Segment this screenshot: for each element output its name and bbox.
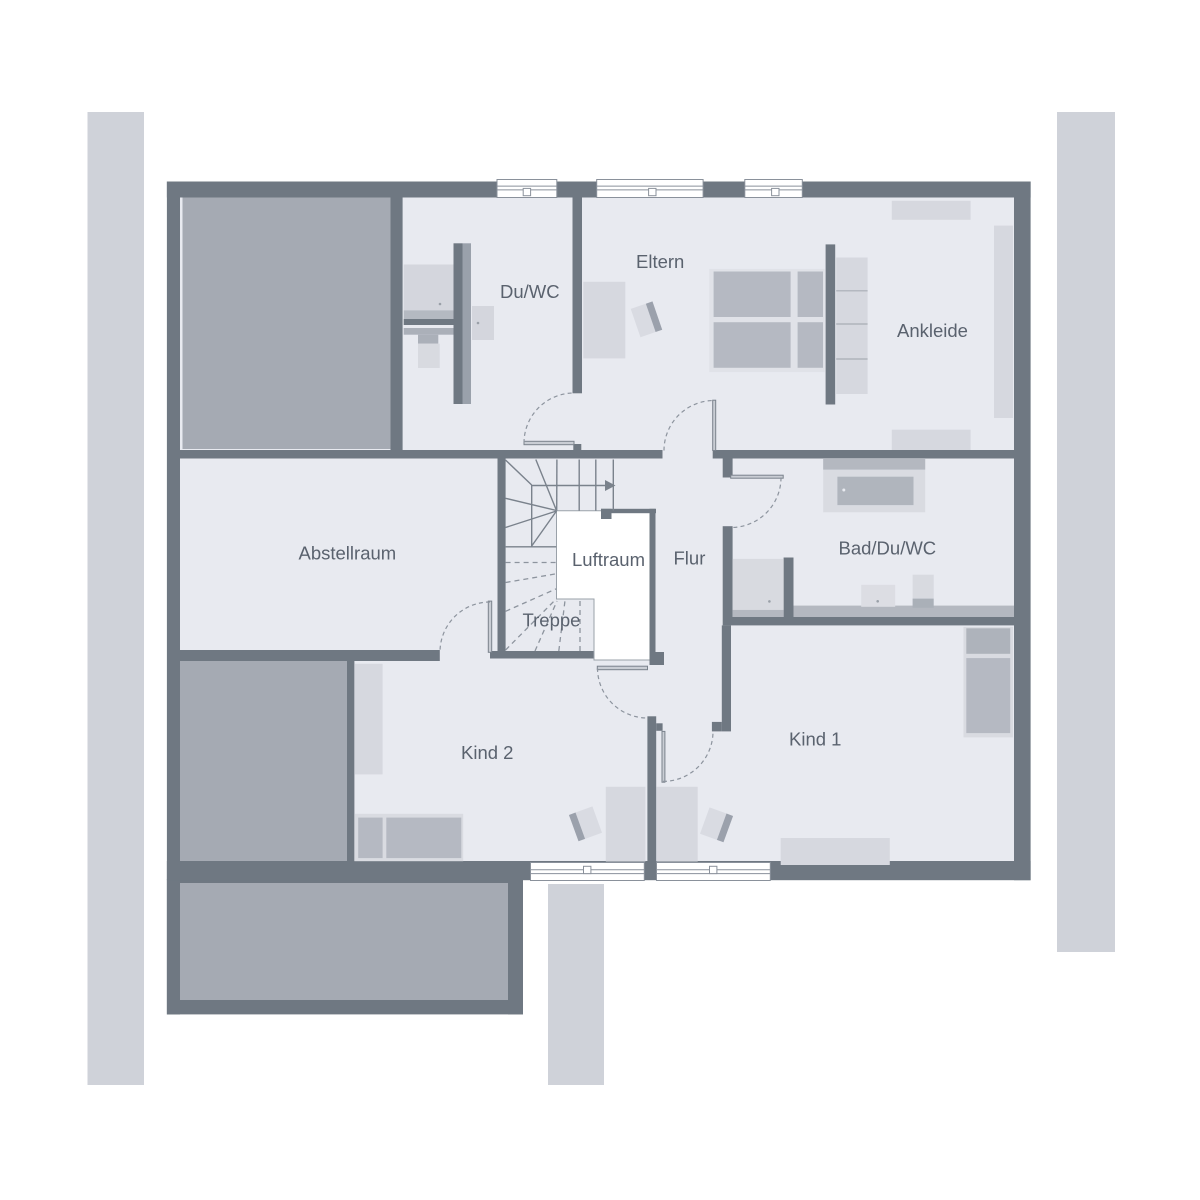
svg-text:Kind 1: Kind 1 <box>789 729 841 750</box>
svg-text:Abstellraum: Abstellraum <box>299 543 397 564</box>
svg-text:Eltern: Eltern <box>636 251 684 272</box>
svg-text:Bad/Du/WC: Bad/Du/WC <box>839 538 937 559</box>
svg-text:Luftraum: Luftraum <box>572 549 645 570</box>
svg-text:Treppe: Treppe <box>523 610 581 631</box>
svg-text:Du/WC: Du/WC <box>500 281 560 302</box>
svg-text:Ankleide: Ankleide <box>897 320 968 341</box>
svg-text:Kind 2: Kind 2 <box>461 742 513 763</box>
svg-text:Flur: Flur <box>674 548 706 569</box>
